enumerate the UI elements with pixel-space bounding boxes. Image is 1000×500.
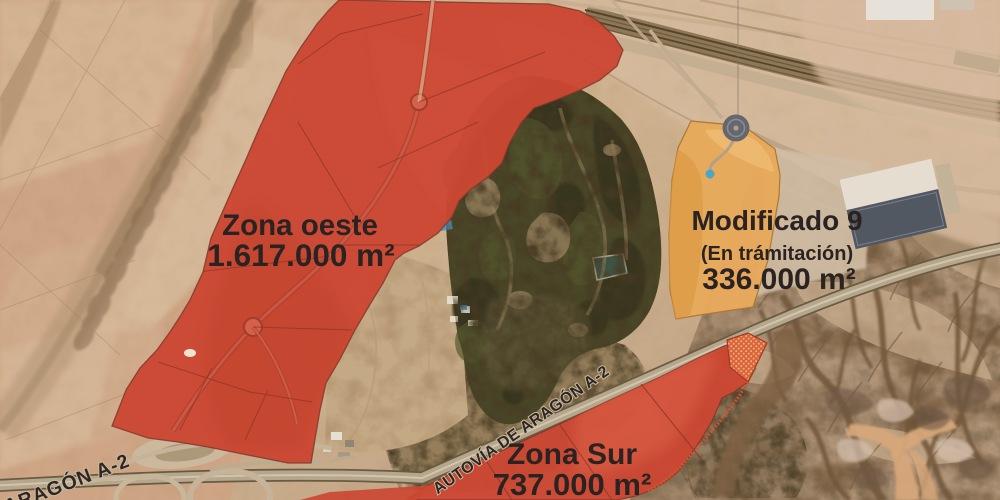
svg-text:336.000 m²: 336.000 m² bbox=[702, 263, 855, 296]
svg-text:(En trámitación): (En trámitación) bbox=[701, 243, 853, 265]
svg-text:Modificado 9: Modificado 9 bbox=[691, 205, 862, 236]
svg-text:737.000 m²: 737.000 m² bbox=[493, 467, 652, 500]
svg-text:1.617.000 m²: 1.617.000 m² bbox=[207, 237, 394, 273]
